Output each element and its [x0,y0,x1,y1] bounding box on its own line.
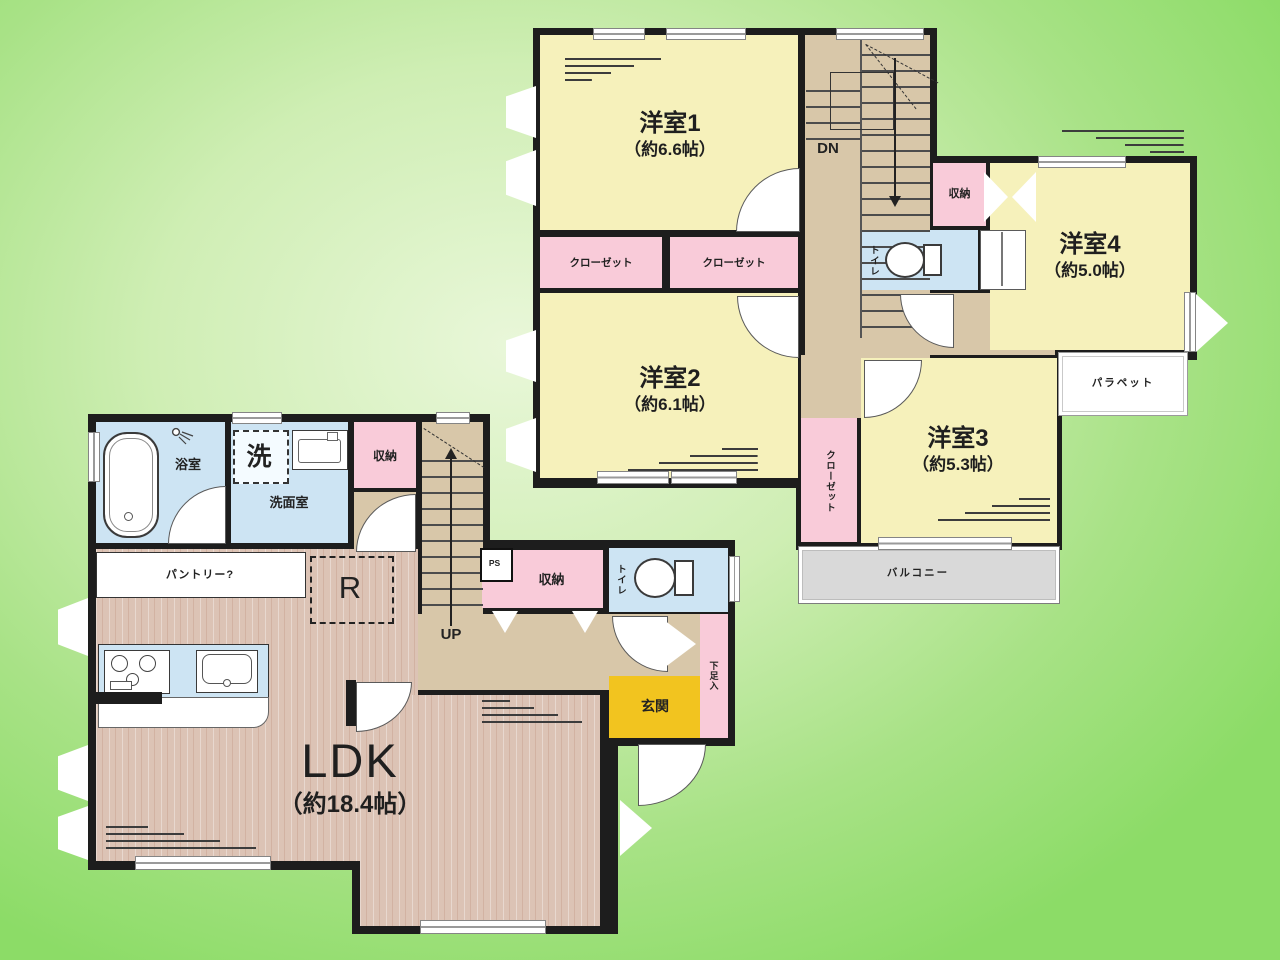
window [420,920,546,934]
window [729,556,740,602]
ceiling-hatch-mark [106,826,256,856]
toilet-icon-1f [634,554,710,604]
closet-b-label: クローゼット [670,250,798,274]
storage-2f-label: 収納 [933,182,986,204]
toilet-2f-label: トイレ [864,234,882,288]
fridge-label: R [310,560,390,616]
parapet-label: パラペット [1068,372,1178,392]
laundry-label: 洗 [235,438,283,472]
window [1184,292,1196,352]
stairs-dn-label: DN [806,138,850,158]
window-shutter [506,330,536,382]
washroom-label: 洗面室 [254,490,324,512]
stairs-2f-arrow-line [894,58,896,198]
window-shutter [506,418,536,472]
balcony-label: バルコニー [858,562,978,582]
window [878,537,1012,550]
closet-c-label: クローゼット [816,428,842,534]
bedroom-4-label: 洋室4 （約5.0帖） [978,218,1202,294]
stairs-2f-arrow-head [889,196,901,207]
ceiling-hatch-mark [482,700,582,724]
stairs-1f-arrow-head [445,448,457,459]
closet-a-label: クローゼット [540,250,662,274]
bathroom-label: 浴室 [160,452,216,474]
stove-icon [104,650,170,694]
window-shutter [506,150,536,206]
bedroom-2-label: 洋室2 （約6.1帖） [556,350,784,430]
entrance-label: 玄関 [624,694,686,718]
stairwell-rail [830,72,894,130]
bathtub-icon [103,432,159,538]
bathtub-drain [124,512,133,521]
casement-window-fan [1196,294,1228,352]
storage-bath-label: 収納 [354,444,416,466]
window-shutter [506,86,536,138]
bedroom-1-label: 洋室1 （約6.6帖） [556,95,784,175]
washbasin-icon [292,430,348,470]
window [436,412,470,424]
window-shutter [58,806,88,860]
bedroom-3-label: 洋室3 （約5.3帖） [846,412,1070,488]
ldk-label: LDK （約18.4帖） [150,724,550,828]
window-shutter [58,598,88,656]
kitchen-sink-icon [196,650,258,693]
ceiling-hatch-mark [938,498,1050,528]
hall-2f-closet-access [801,355,857,418]
shower-icon [170,426,196,446]
stairs-up-label: UP [428,624,474,644]
casement-window-fan [620,800,652,856]
toilet-icon-2f [885,238,957,282]
window [135,856,271,870]
window [666,28,746,40]
window [836,28,924,40]
ceiling-hatch-mark [1062,130,1184,160]
pantry-label: パントリー? [110,562,290,586]
stairs-1f-arrow-line [450,458,452,626]
window-shutter [58,745,88,801]
kitchen-wall-stub [88,692,162,704]
window [232,412,282,424]
stairs-1f-treads [422,446,483,620]
storage-hall-label: 収納 [500,566,603,590]
entrance-door-arc [638,744,706,806]
toilet-1f-label: トイレ [611,552,629,608]
door-wall-stub [346,680,356,726]
window [88,432,100,482]
shoe-cabinet-label: 下足入 [702,640,726,712]
ceiling-hatch-mark [565,58,661,84]
window [593,28,645,40]
floor-plan: { "floor2": { "room1_name": "洋室1", "room… [0,0,1280,960]
ceiling-hatch-mark [628,448,758,474]
